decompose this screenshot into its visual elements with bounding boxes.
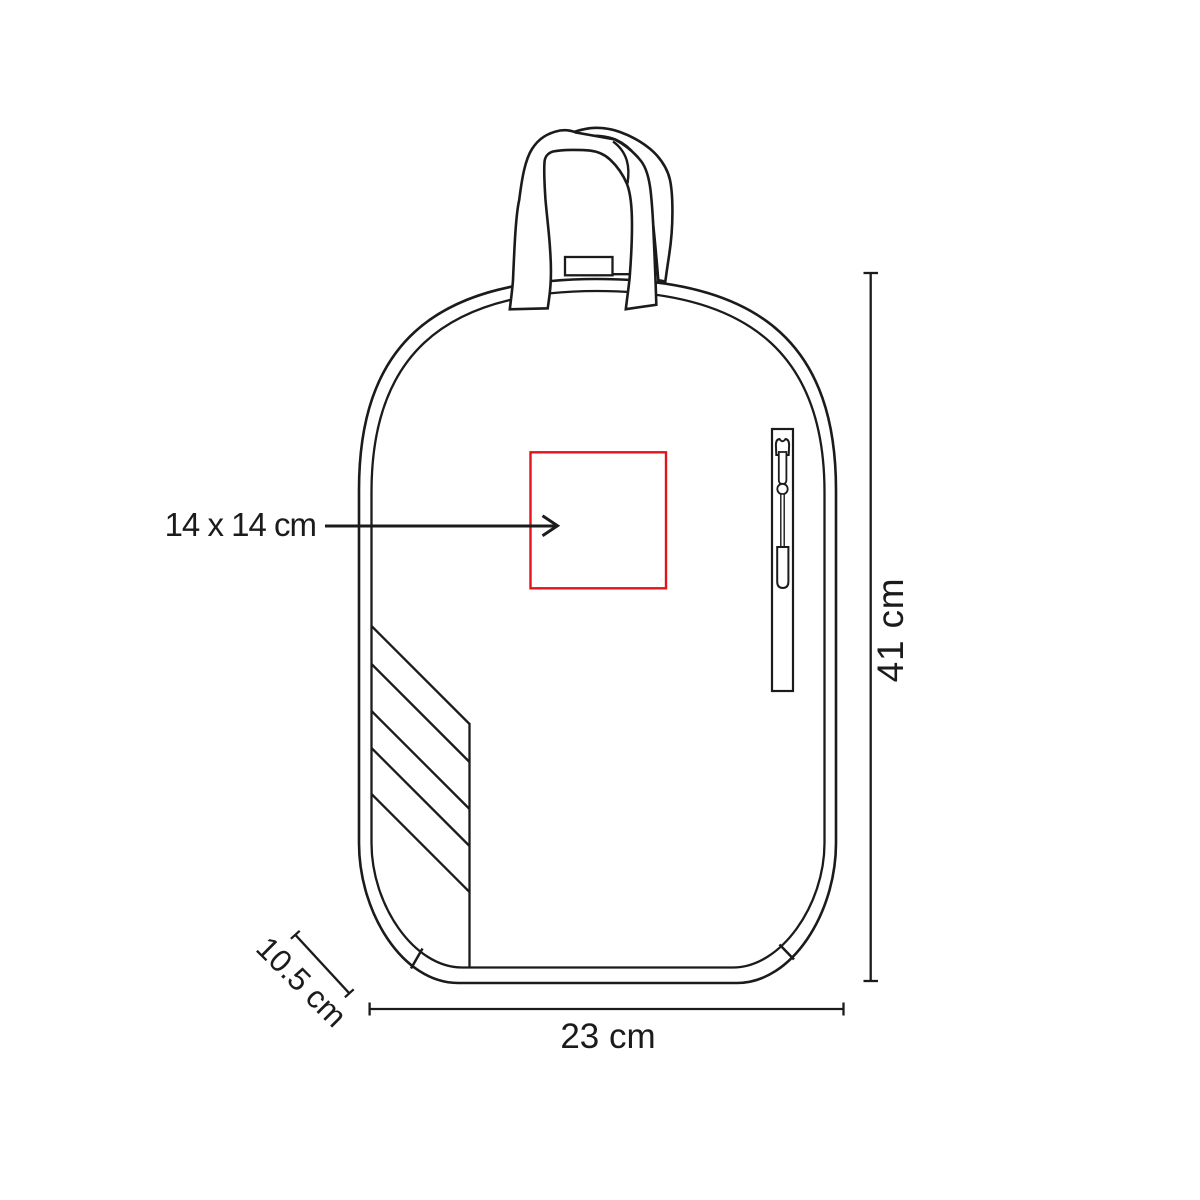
svg-text:14 x 14 cm: 14 x 14 cm	[165, 506, 316, 543]
svg-text:23 cm: 23 cm	[560, 1017, 655, 1056]
svg-text:41 cm: 41 cm	[870, 578, 911, 683]
